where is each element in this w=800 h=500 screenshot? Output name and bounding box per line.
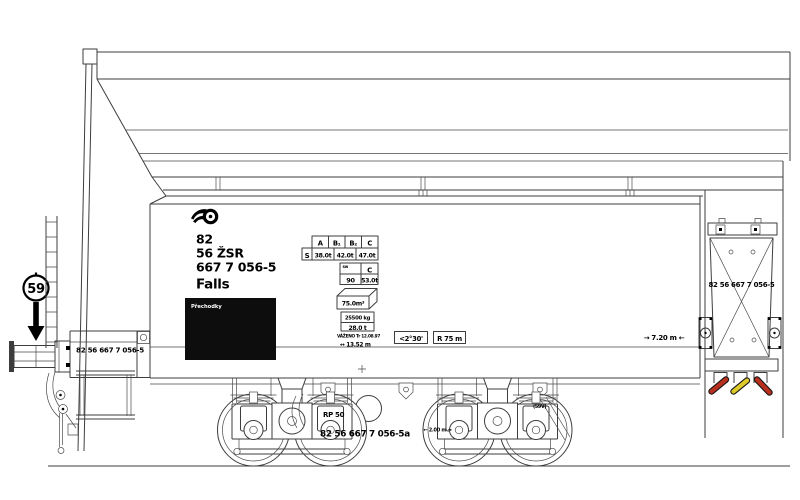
curve-radius-box: R 75 m — [434, 332, 466, 344]
curve-radius-value: R 75 m — [437, 335, 462, 343]
col-B2: B₂ — [349, 239, 357, 247]
end-wall-panel — [710, 238, 773, 357]
tare-value: 28.0 t — [349, 325, 367, 332]
speed-table-C: C — [367, 267, 372, 275]
reg-line2: 56 ŽSR — [196, 246, 244, 261]
bolster — [484, 378, 512, 389]
load-B: 42.0t — [337, 253, 354, 260]
bogie-right — [423, 378, 572, 466]
volume-box: 75.0m³ — [337, 289, 377, 310]
panel-label: Přechodky — [191, 303, 222, 310]
end-ladder — [46, 216, 57, 348]
load-limit-table: A B₁ B₂ C S 38.0t 42.0t 47.0t — [302, 236, 378, 260]
load-C: 47.0t — [359, 253, 376, 260]
lamp-bracket — [138, 332, 150, 344]
brake-weight-value: 25500 kg — [345, 316, 371, 322]
load-A: 38.0t — [315, 253, 332, 260]
bogie-type-label: RP 50 — [323, 411, 345, 419]
brake-weight-box: 25500 kg 28.0 t — [341, 312, 374, 332]
end-bottom-beam — [705, 359, 778, 371]
drawing-svg: 59 82 56 667 7 056-5 — [0, 0, 800, 500]
top-walkway-band — [152, 177, 783, 190]
rigging-hangers — [321, 383, 547, 399]
volume-value: 75.0m³ — [342, 301, 365, 308]
mast-cap — [83, 49, 97, 64]
bogie-wheelbase: ← 2.00 m → — [423, 428, 451, 434]
buffer-barrel — [14, 346, 55, 368]
label-panel: Přechodky — [185, 298, 276, 360]
bogie-number: 82 56 667 7 056-5a — [320, 430, 410, 440]
bogie-left — [218, 378, 367, 466]
arrow-shaft — [33, 302, 39, 327]
speed-load-value: 53.0t — [361, 278, 378, 285]
reg-line3: 667 7 056-5 — [196, 260, 276, 275]
valve-label: (59V) — [533, 404, 546, 410]
end-wall-number: 82 56 667 7 056-5 — [708, 281, 774, 289]
row-S: S — [305, 252, 310, 260]
end-view: 82 56 667 7 056-5 — [699, 161, 783, 438]
col-C: C — [367, 239, 372, 247]
length-over-buffers: ↔ 13.52 m — [340, 343, 371, 349]
zsr-logo — [191, 209, 218, 225]
loading-gauge-sign: 59 — [24, 273, 49, 342]
buffer-plate — [9, 341, 14, 372]
bolster — [278, 378, 306, 389]
speed-table-corner: sw — [343, 264, 349, 269]
arrow-head-icon — [28, 326, 45, 341]
weighed-note: VÁŽENO Tr 12.08.97 — [337, 332, 380, 340]
handbrake-gear — [46, 372, 78, 454]
wagon-class: Falls — [196, 277, 230, 293]
end-slope — [97, 79, 166, 196]
center-mark — [358, 365, 366, 373]
hopper-body — [78, 49, 790, 451]
ferry-angle-box: <2°30' — [395, 332, 428, 344]
speed-value: 90 — [346, 277, 355, 285]
buffer-end-number: 82 56 667 7 056-5 — [76, 346, 144, 355]
wagon-number-block: 82 56 ŽSR 667 7 056-5 Falls — [196, 232, 276, 293]
gauge-sign-number: 59 — [27, 282, 45, 297]
col-B1: B₁ — [333, 239, 341, 247]
shunting-levers — [712, 380, 770, 393]
wagon-technical-drawing: 59 82 56 667 7 056-5 — [0, 0, 800, 500]
ferry-angle-value: <2°30' — [399, 335, 423, 343]
speed-load-table: sw C 90 53.0t — [340, 263, 378, 285]
pivot-distance: → 7.20 m ← — [644, 334, 685, 342]
x-bracing — [710, 238, 773, 357]
left-buffer — [9, 341, 70, 372]
col-A: A — [318, 239, 324, 247]
reg-line1: 82 — [196, 232, 213, 247]
